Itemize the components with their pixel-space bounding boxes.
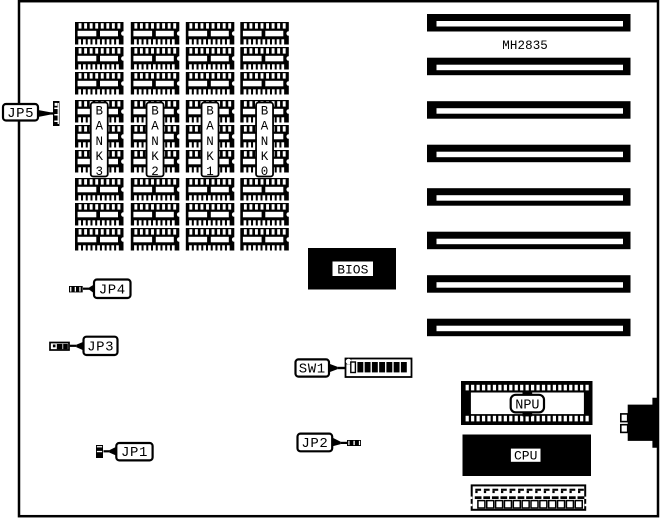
svg-text:K: K <box>206 150 214 164</box>
svg-text:BIOS: BIOS <box>337 262 368 277</box>
svg-text:0: 0 <box>261 165 269 179</box>
svg-text:MH2835: MH2835 <box>502 39 548 53</box>
svg-text:K: K <box>151 150 159 164</box>
svg-text:1: 1 <box>206 165 214 179</box>
svg-text:CPU: CPU <box>514 449 537 464</box>
svg-text:3: 3 <box>95 165 103 179</box>
svg-text:N: N <box>95 135 103 149</box>
svg-text:B: B <box>206 105 214 119</box>
svg-text:B: B <box>151 105 159 119</box>
svg-text:B: B <box>95 105 103 119</box>
svg-text:JP5: JP5 <box>7 106 34 122</box>
svg-text:SW1: SW1 <box>299 361 326 377</box>
svg-text:K: K <box>95 150 103 164</box>
svg-text:2: 2 <box>151 165 159 179</box>
svg-text:A: A <box>206 120 214 134</box>
svg-text:B: B <box>261 105 269 119</box>
svg-text:A: A <box>261 120 269 134</box>
svg-text:JP3: JP3 <box>87 339 114 355</box>
svg-text:K: K <box>261 150 269 164</box>
svg-text:N: N <box>261 135 269 149</box>
svg-text:JP1: JP1 <box>121 445 148 461</box>
svg-text:A: A <box>95 120 103 134</box>
svg-text:N: N <box>206 135 214 149</box>
svg-text:JP4: JP4 <box>99 282 126 298</box>
svg-text:A: A <box>151 120 159 134</box>
svg-text:NPU: NPU <box>515 398 539 413</box>
svg-text:JP2: JP2 <box>301 436 328 452</box>
svg-text:N: N <box>151 135 159 149</box>
